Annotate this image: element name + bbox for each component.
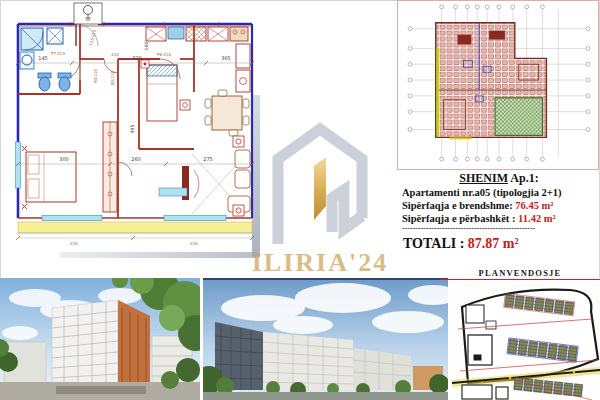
svg-text:P7 210: P7 210 <box>51 51 65 56</box>
svg-text:320: 320 <box>132 55 142 61</box>
brand-wordmark: ILIRIA'24 <box>238 248 402 278</box>
iliria-watermark: ILIRIA'24 <box>238 106 402 286</box>
highlighted-apartment <box>495 98 542 136</box>
toilet-icon <box>38 73 51 91</box>
site-location-plan <box>452 283 600 400</box>
dimensions: 145 320 365 300 260 275 160 495 125/215 … <box>16 29 254 246</box>
separator-dashes: ----------------------------------------… <box>399 225 599 233</box>
svg-text:260: 260 <box>131 156 141 162</box>
living-room <box>159 136 250 216</box>
speaker-icon <box>233 205 244 216</box>
svg-text:495: 495 <box>130 125 135 134</box>
tower-white <box>52 300 118 386</box>
note-heading: SHENIM Ap.1: <box>399 171 599 186</box>
ground <box>203 392 448 400</box>
bidet-icon <box>58 73 71 91</box>
floor-locator-plan <box>398 1 598 169</box>
lots-lower-left <box>462 385 508 399</box>
sink-icon <box>22 55 32 65</box>
svg-text:145: 145 <box>38 55 48 61</box>
kitchen-sink-icon <box>168 27 184 39</box>
apartment-floor-plan: 145 320 365 300 260 275 160 495 125/215 … <box>14 2 258 254</box>
dining-table <box>205 90 249 136</box>
brochure-sheet: 145 320 365 300 260 275 160 495 125/215 … <box>0 0 600 400</box>
balcony-strip <box>18 222 252 233</box>
svg-text:275: 275 <box>203 156 213 162</box>
bedroom-main <box>22 122 117 212</box>
building-footprint <box>436 23 547 139</box>
speaker-icon <box>233 136 244 147</box>
bedroom-middle <box>141 60 190 121</box>
apartment-line: Apartamenti nr.a05 (tipologjia 2+1) <box>399 186 599 199</box>
building-render-photo-2 <box>203 278 448 400</box>
svg-text:210: 210 <box>111 52 119 57</box>
svg-text:90/210: 90/210 <box>93 69 98 84</box>
site-plan-label: PLANVENDOSJE <box>440 268 600 280</box>
svg-text:80/210: 80/210 <box>110 71 115 86</box>
entry-vestibule <box>74 3 102 46</box>
stove-icon <box>230 27 248 41</box>
floor-locator-panel <box>397 0 599 170</box>
sofa-icon <box>228 150 250 212</box>
svg-text:215: 215 <box>70 241 78 246</box>
svg-text:300: 300 <box>59 156 69 162</box>
svg-text:160: 160 <box>144 42 149 51</box>
svg-text:P6 210: P6 210 <box>157 52 171 57</box>
area-common-line: Sipërfaqja e përbashkët : 11.42 m² <box>399 212 599 225</box>
window-bottom-right <box>164 216 226 221</box>
total-line: TOTALI : 87.87 m² <box>399 236 599 252</box>
building-render-photo-1 <box>0 278 200 400</box>
svg-text:365: 365 <box>221 55 231 61</box>
svg-text:215: 215 <box>190 241 198 246</box>
window-bottom-left <box>42 216 102 221</box>
area-inner-line: Sipërfaqja e brendshme: 76.45 m² <box>399 199 599 212</box>
wardrobe-icon <box>103 122 117 212</box>
note-block: SHENIM Ap.1: Apartamenti nr.a05 (tipolog… <box>399 169 599 252</box>
house-logo-icon <box>245 106 395 258</box>
fridge-icon <box>236 44 250 68</box>
window-left <box>16 142 21 188</box>
svg-text:125/215: 125/215 <box>88 29 97 47</box>
